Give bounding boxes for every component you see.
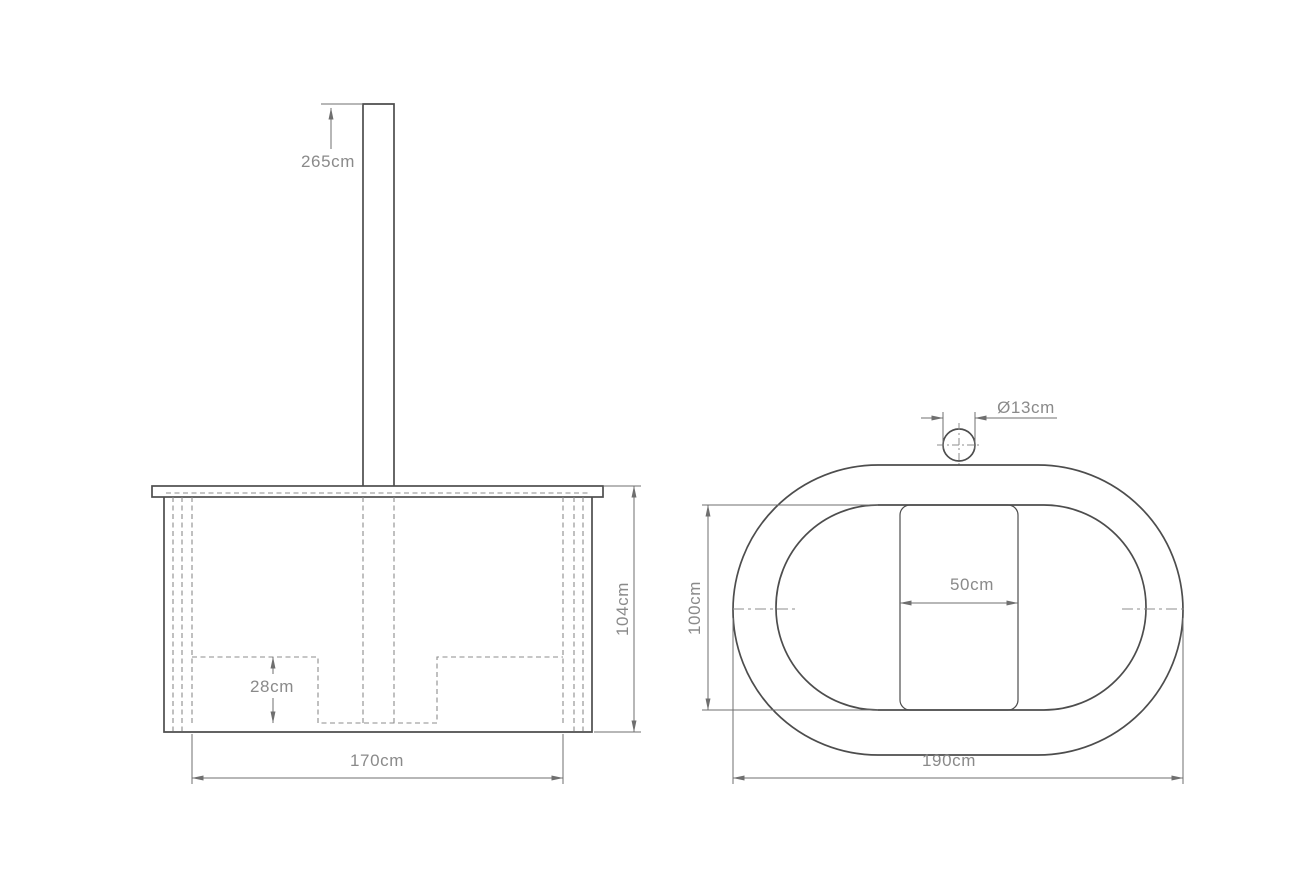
front-elevation-view: 265cm [152,104,641,784]
dimension-outer-length: 190cm [733,618,1183,784]
stove-compartment-outline [900,505,1018,710]
technical-drawing-canvas: 265cm [0,0,1290,878]
inner-oval-outline [776,505,1146,710]
dimension-chimney-diameter: Ø13cm [921,398,1057,449]
dimension-label-chimney-diameter: Ø13cm [997,398,1055,417]
dimension-label-seat-height: 28cm [250,677,294,696]
outer-oval-outline [733,465,1183,755]
dimension-label-inner-width: 100cm [685,581,704,635]
dimension-seat-height: 28cm [245,657,300,723]
plan-view: Ø13cm 50cm 100cm [685,398,1184,784]
dimension-stove-width: 50cm [900,575,1018,603]
tub-body-outline [164,497,592,732]
dimension-label-stove-width: 50cm [950,575,994,594]
dimension-label-tub-width: 170cm [350,751,404,770]
dimension-tub-height: 104cm [594,486,641,732]
dimension-label-tub-height: 104cm [613,582,632,636]
hot-tub-dimension-drawing: 265cm [0,0,1290,878]
chimney-hidden-lines [363,497,394,723]
dimension-label-outer-length: 190cm [922,751,976,770]
dimension-label-chimney-height: 265cm [301,152,355,171]
chimney-outline [363,104,394,486]
rim-outline [152,486,603,497]
dimension-tub-width: 170cm [192,734,563,784]
dimension-chimney-height: 265cm [301,108,355,171]
wall-hidden-lines [173,497,583,731]
dimension-inner-width: 100cm [685,505,878,710]
